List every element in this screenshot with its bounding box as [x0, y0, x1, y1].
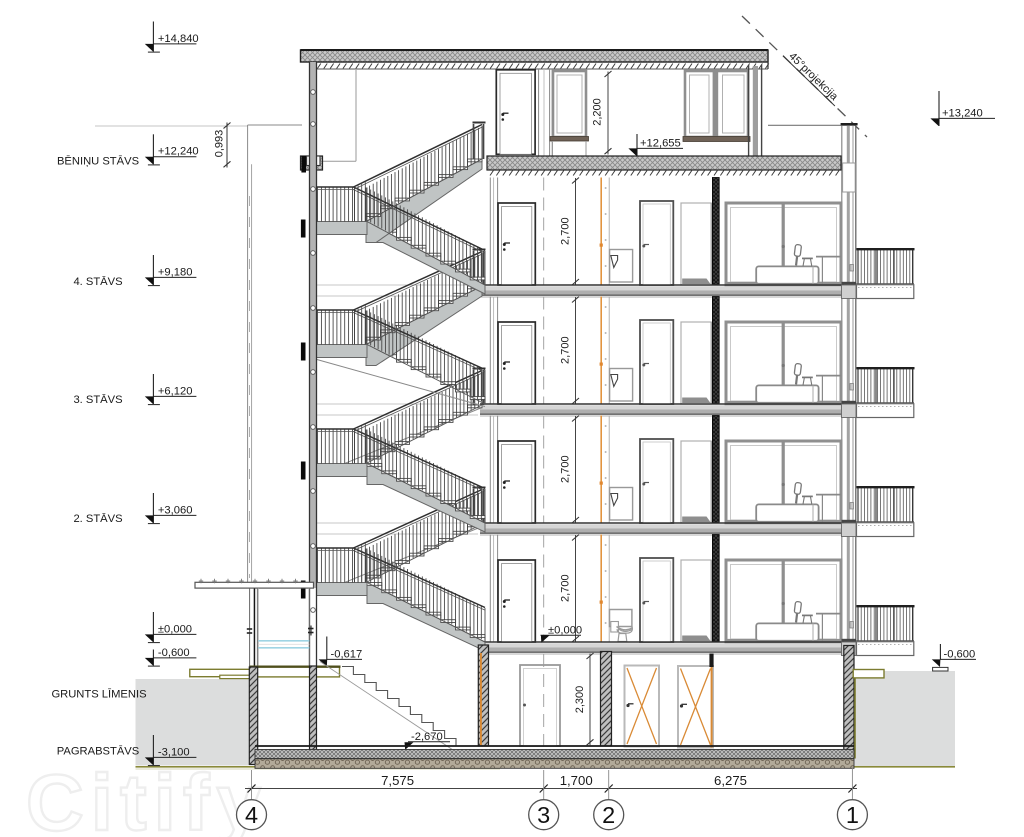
svg-text:+9,180: +9,180: [158, 266, 193, 278]
svg-text:2: 2: [602, 802, 615, 828]
svg-text:-0,600: -0,600: [944, 648, 976, 660]
svg-text:4: 4: [245, 802, 258, 828]
svg-text:-0,600: -0,600: [158, 647, 190, 659]
svg-text:+14,840: +14,840: [158, 33, 199, 45]
svg-text:3. STĀVS: 3. STĀVS: [73, 394, 122, 406]
svg-text:1: 1: [846, 802, 859, 828]
svg-text:2,200: 2,200: [592, 98, 604, 126]
svg-text:-2,670: -2,670: [411, 731, 443, 743]
svg-text:2,700: 2,700: [560, 455, 572, 483]
svg-text:GRUNTS LĪMENIS: GRUNTS LĪMENIS: [51, 689, 146, 701]
svg-text:+3,060: +3,060: [158, 504, 193, 516]
svg-text:1,700: 1,700: [560, 773, 593, 788]
svg-text:2,300: 2,300: [574, 686, 586, 714]
svg-text:-3,100: -3,100: [158, 746, 190, 758]
svg-text:7,575: 7,575: [381, 773, 414, 788]
svg-text:±0,000: ±0,000: [548, 624, 582, 636]
svg-text:2,700: 2,700: [560, 574, 572, 602]
svg-text:4. STĀVS: 4. STĀVS: [73, 276, 122, 288]
svg-text:+13,240: +13,240: [942, 107, 983, 119]
svg-text:PAGRABSTĀVS: PAGRABSTĀVS: [57, 746, 139, 758]
svg-text:Citify: Citify: [26, 758, 268, 837]
svg-text:+12,655: +12,655: [640, 137, 681, 149]
svg-text:2,700: 2,700: [560, 217, 572, 245]
svg-text:2,700: 2,700: [560, 336, 572, 364]
svg-text:3: 3: [537, 802, 550, 828]
svg-text:0,993: 0,993: [214, 130, 226, 158]
svg-text:6,275: 6,275: [714, 773, 747, 788]
svg-text:-0,617: -0,617: [331, 649, 363, 661]
svg-text:+12,240: +12,240: [158, 146, 199, 158]
svg-text:+6,120: +6,120: [158, 385, 193, 397]
svg-text:2. STĀVS: 2. STĀVS: [73, 513, 122, 525]
svg-text:BĒNIŅU STĀVS: BĒNIŅU STĀVS: [57, 156, 139, 168]
svg-text:±0,000: ±0,000: [158, 623, 192, 635]
